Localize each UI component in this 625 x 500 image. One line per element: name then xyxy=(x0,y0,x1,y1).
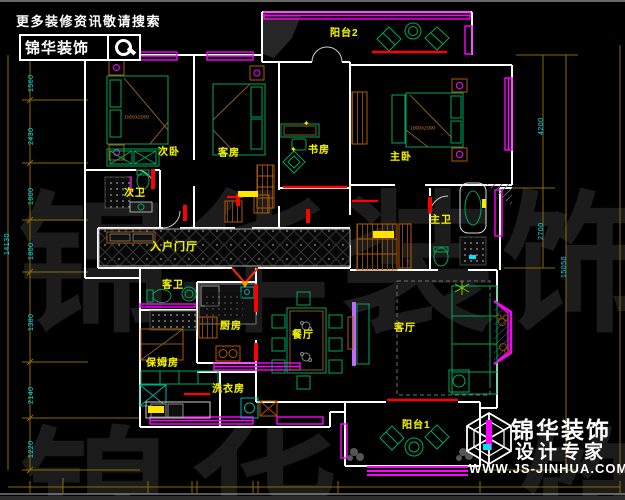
room-label-laundry-room: 洗衣房 xyxy=(212,380,245,395)
dim-left-4: 1800 xyxy=(28,242,35,260)
room-label-nanny-room: 保姆房 xyxy=(146,354,179,369)
dim-left-1: 1560 xyxy=(28,74,35,92)
highlight-bar xyxy=(238,191,258,197)
nightstand xyxy=(250,66,264,80)
bed-size-label: 1500x2000 xyxy=(124,115,149,120)
room-label-guest-bath: 客卫 xyxy=(162,276,184,291)
light-symbol: ✦ xyxy=(290,145,297,154)
cube-logo-icon xyxy=(467,413,511,464)
wardrobe xyxy=(399,224,411,268)
search-icon xyxy=(107,36,139,59)
room-label-kitchen: 厨房 xyxy=(220,317,242,332)
dim-left-total: 14130 xyxy=(4,233,11,255)
room-label-dining-room: 餐厅 xyxy=(292,326,314,341)
wardrobe xyxy=(357,224,397,270)
search-logo-box: 锦华装饰 xyxy=(19,34,141,61)
chair xyxy=(329,315,342,328)
dresser xyxy=(352,92,367,144)
room-label-balcony1: 阳台1 xyxy=(402,416,431,431)
bench xyxy=(392,95,405,143)
bed-size-label: 1800x2000 xyxy=(410,126,435,131)
hatch-blob xyxy=(263,14,301,58)
balcony2-furniture xyxy=(377,23,449,51)
side-table xyxy=(283,151,305,173)
table xyxy=(405,23,421,39)
room-label-secondary-bedroom: 次卧 xyxy=(158,143,180,158)
footer-subtitle: 设计专家 xyxy=(515,437,607,464)
room-label-secondary-bath: 次卫 xyxy=(124,184,146,199)
dim-right-total: 15050 xyxy=(561,256,568,278)
cabinet xyxy=(199,317,217,338)
room-label-study: 书房 xyxy=(308,141,330,156)
dim-left-7: 1220 xyxy=(28,440,35,458)
room-label-master-bedroom: 主卧 xyxy=(390,148,412,163)
light-symbol: ✦ xyxy=(303,119,310,128)
floor-mat xyxy=(150,311,196,330)
table xyxy=(405,438,423,456)
entry-hall-floor xyxy=(99,229,350,266)
shower-floor xyxy=(460,237,486,265)
room-label-entry-hall: 入户门厅 xyxy=(150,238,198,254)
header-slogan: 更多装修资讯敬请搜索 xyxy=(16,11,161,30)
floorplan-canvas: 锦 华 装 饰 锦 华 饰 xyxy=(0,0,625,500)
bottom-strip xyxy=(0,496,625,500)
chair xyxy=(329,360,342,373)
wardrobe xyxy=(107,149,159,166)
room-label-living-room: 客厅 xyxy=(394,319,416,334)
footer-website: WWW.JS-JINHUA.COM xyxy=(469,461,625,476)
room-label-guest-room: 客房 xyxy=(218,144,240,159)
room-label-balcony2: 阳台2 xyxy=(330,24,359,39)
dim-left-6: 2140 xyxy=(28,386,35,404)
chair xyxy=(329,338,342,351)
chair xyxy=(297,376,310,389)
dim-left-5: 1380 xyxy=(28,313,35,331)
brand-name: 锦华装饰 xyxy=(21,37,107,58)
dim-left-2: 2430 xyxy=(28,127,35,145)
svg-text:华: 华 xyxy=(190,419,340,500)
dim-left-3: 1800 xyxy=(28,187,35,205)
closet-furniture xyxy=(357,224,411,270)
nightstand xyxy=(452,79,467,92)
dim-right-2: 2700 xyxy=(538,222,545,240)
room-label-master-bath: 主卫 xyxy=(430,211,452,226)
dim-right-1: 4200 xyxy=(538,117,545,135)
nightstand xyxy=(109,60,124,75)
nightstand xyxy=(452,148,467,161)
